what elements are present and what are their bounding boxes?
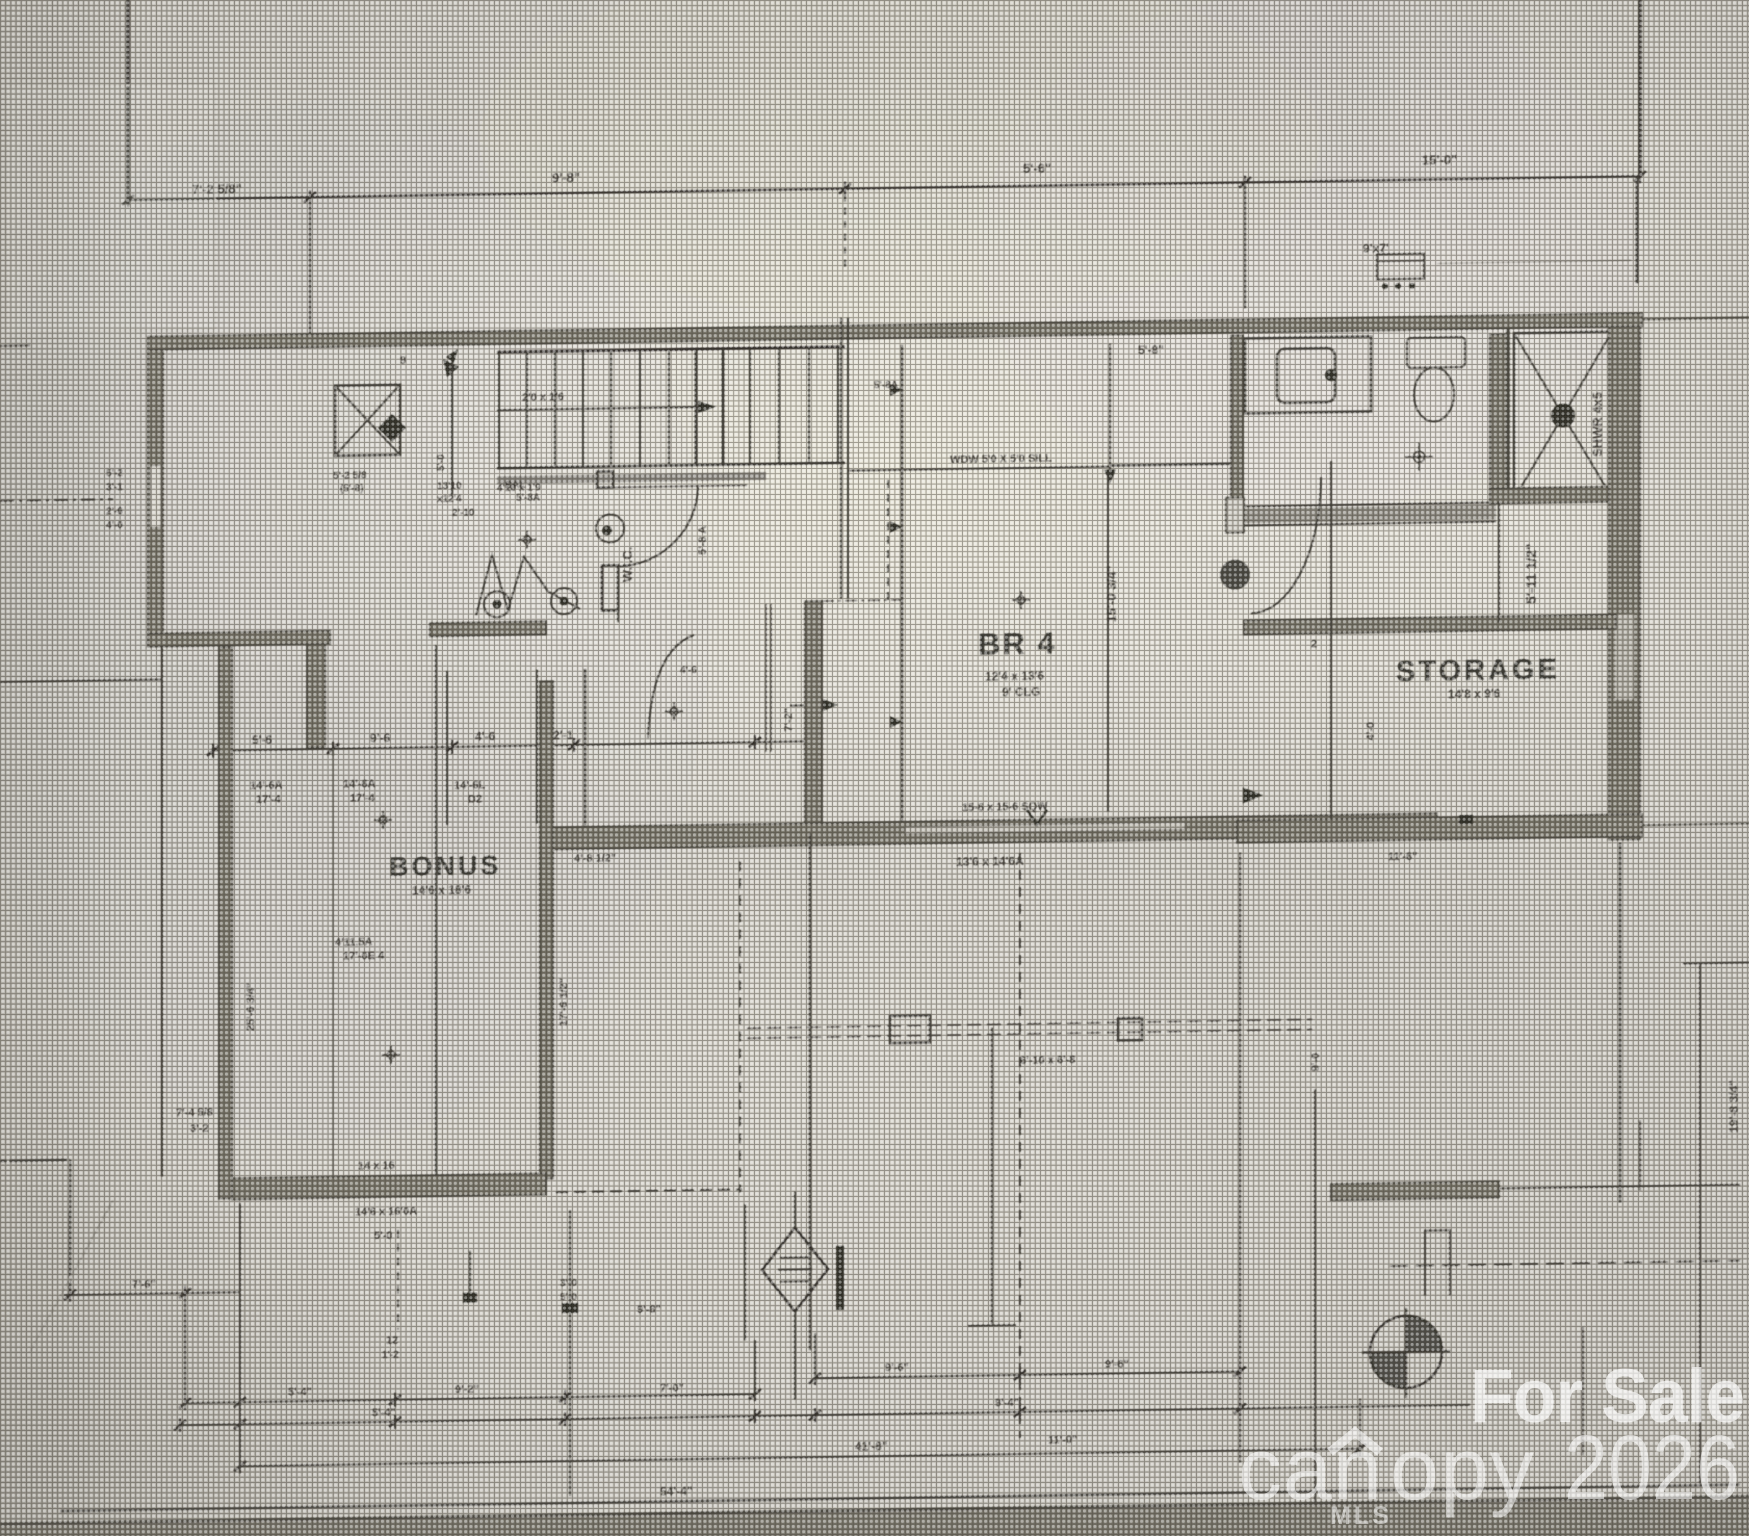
svg-text:2026: 2026	[1564, 1416, 1740, 1519]
svg-text:MLS: MLS	[1330, 1502, 1392, 1530]
svg-text:opy: opy	[1390, 1419, 1535, 1518]
